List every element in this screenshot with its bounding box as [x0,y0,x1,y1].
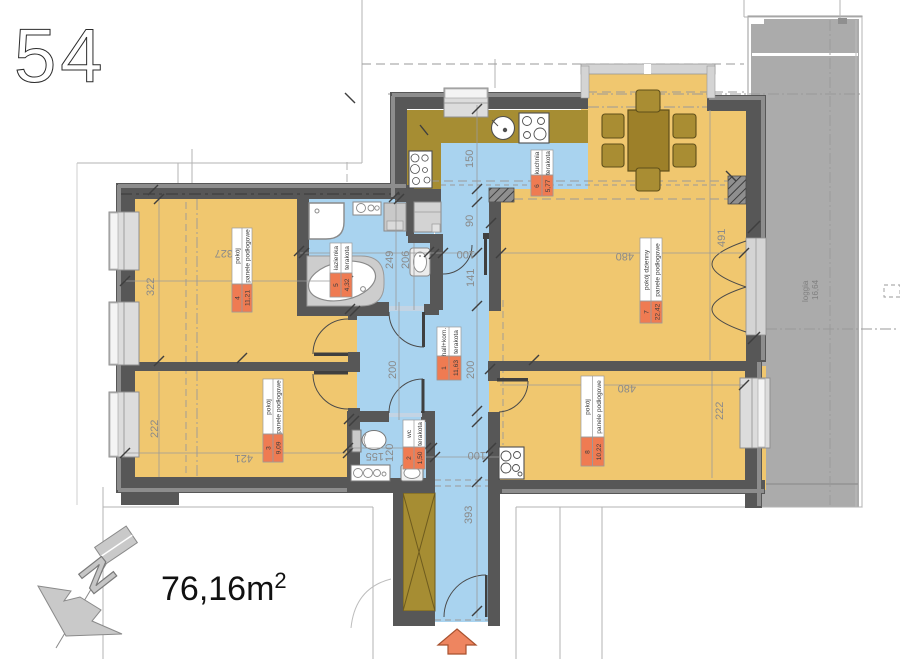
svg-text:4: 4 [235,296,242,300]
svg-text:pokój: pokój [266,399,273,415]
svg-text:wc: wc [406,429,413,439]
svg-text:222: 222 [714,402,726,420]
svg-text:100: 100 [468,449,486,461]
svg-text:1: 1 [441,366,448,370]
svg-text:480: 480 [618,382,636,394]
svg-text:200: 200 [387,361,399,379]
svg-text:panele podłogowe: panele podłogowe [245,229,252,283]
svg-text:panele podłogowe: panele podłogowe [596,380,603,434]
svg-text:200: 200 [465,361,477,379]
svg-text:141: 141 [465,269,477,287]
svg-text:155: 155 [366,450,384,462]
svg-text:322: 322 [145,278,157,296]
svg-text:150: 150 [464,150,476,168]
svg-text:11,63: 11,63 [453,360,460,376]
svg-text:1,50: 1,50 [417,451,424,464]
svg-text:11,21: 11,21 [245,290,252,306]
svg-text:łazienka: łazienka [333,246,340,271]
svg-text:9,09: 9,09 [276,441,283,454]
svg-text:6: 6 [534,184,541,188]
svg-text:206: 206 [400,251,412,269]
svg-text:120: 120 [384,444,396,462]
svg-text:100: 100 [457,248,475,260]
svg-text:491: 491 [716,229,728,247]
svg-text:panele podłogowe: panele podłogowe [276,380,283,434]
svg-text:pokój dzienny: pokój dzienny [643,249,650,290]
svg-text:54: 54 [14,14,107,99]
svg-text:480: 480 [616,250,634,262]
svg-text:22,42: 22,42 [654,303,661,320]
svg-text:terakota: terakota [545,151,552,175]
svg-text:5: 5 [333,283,340,287]
svg-text:16,64: 16,64 [811,279,820,300]
svg-text:421: 421 [235,452,253,464]
svg-text:terakota: terakota [344,246,351,270]
svg-text:pokój: pokój [235,248,242,264]
svg-text:4,32: 4,32 [344,278,351,291]
svg-text:loggia: loggia [801,280,810,302]
svg-text:terakota: terakota [453,330,460,354]
svg-text:terakota: terakota [417,422,424,446]
svg-text:panele podłogowe: panele podłogowe [654,243,661,297]
svg-text:10,22: 10,22 [596,443,603,460]
svg-text:90: 90 [464,215,476,227]
svg-text:hall+kom.: hall+kom. [441,328,448,357]
svg-text:pokój: pokój [585,399,592,415]
svg-text:393: 393 [463,506,475,524]
svg-text:249: 249 [384,251,396,269]
svg-text:kuchnia: kuchnia [534,151,541,174]
svg-text:3: 3 [266,446,273,450]
svg-text:327: 327 [215,247,233,259]
svg-text:7: 7 [643,310,650,314]
svg-text:222: 222 [149,420,161,438]
svg-text:2: 2 [406,456,413,460]
svg-text:76,16m2: 76,16m2 [161,568,287,608]
svg-text:5,77: 5,77 [545,179,552,192]
svg-text:8: 8 [585,450,592,454]
